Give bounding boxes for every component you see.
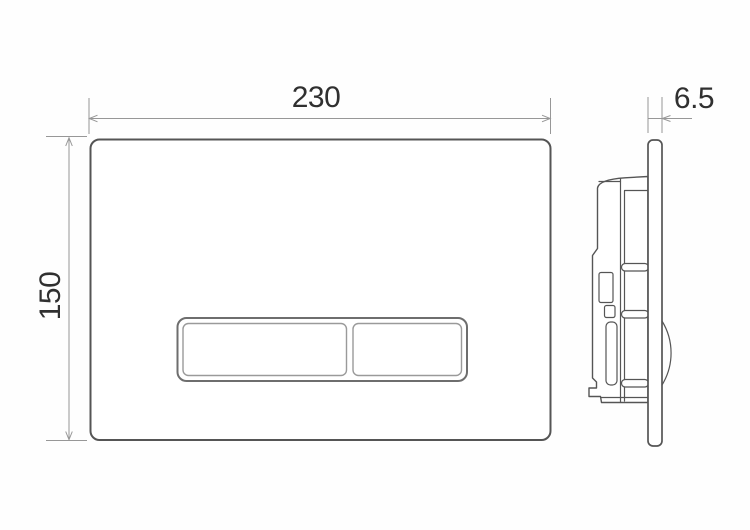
button-dome-arc [662,321,671,385]
front-plate [91,140,551,441]
depth-dimension-label: 6.5 [674,84,714,114]
flush-button-large [183,324,347,376]
technical-drawing [0,0,750,530]
side-view [589,140,671,446]
side-plate [648,140,662,446]
flush-button-small [353,324,462,376]
drawing-canvas: 230 150 6.5 [0,0,750,530]
rib-slot-2 [622,311,649,319]
width-dimension-label: 230 [292,83,341,113]
rib-slot-1 [622,264,649,272]
height-dimension-label: 150 [36,272,66,321]
rib-slot-3 [622,380,649,388]
mechanism-housing-outline [589,177,648,403]
front-view [91,140,551,441]
